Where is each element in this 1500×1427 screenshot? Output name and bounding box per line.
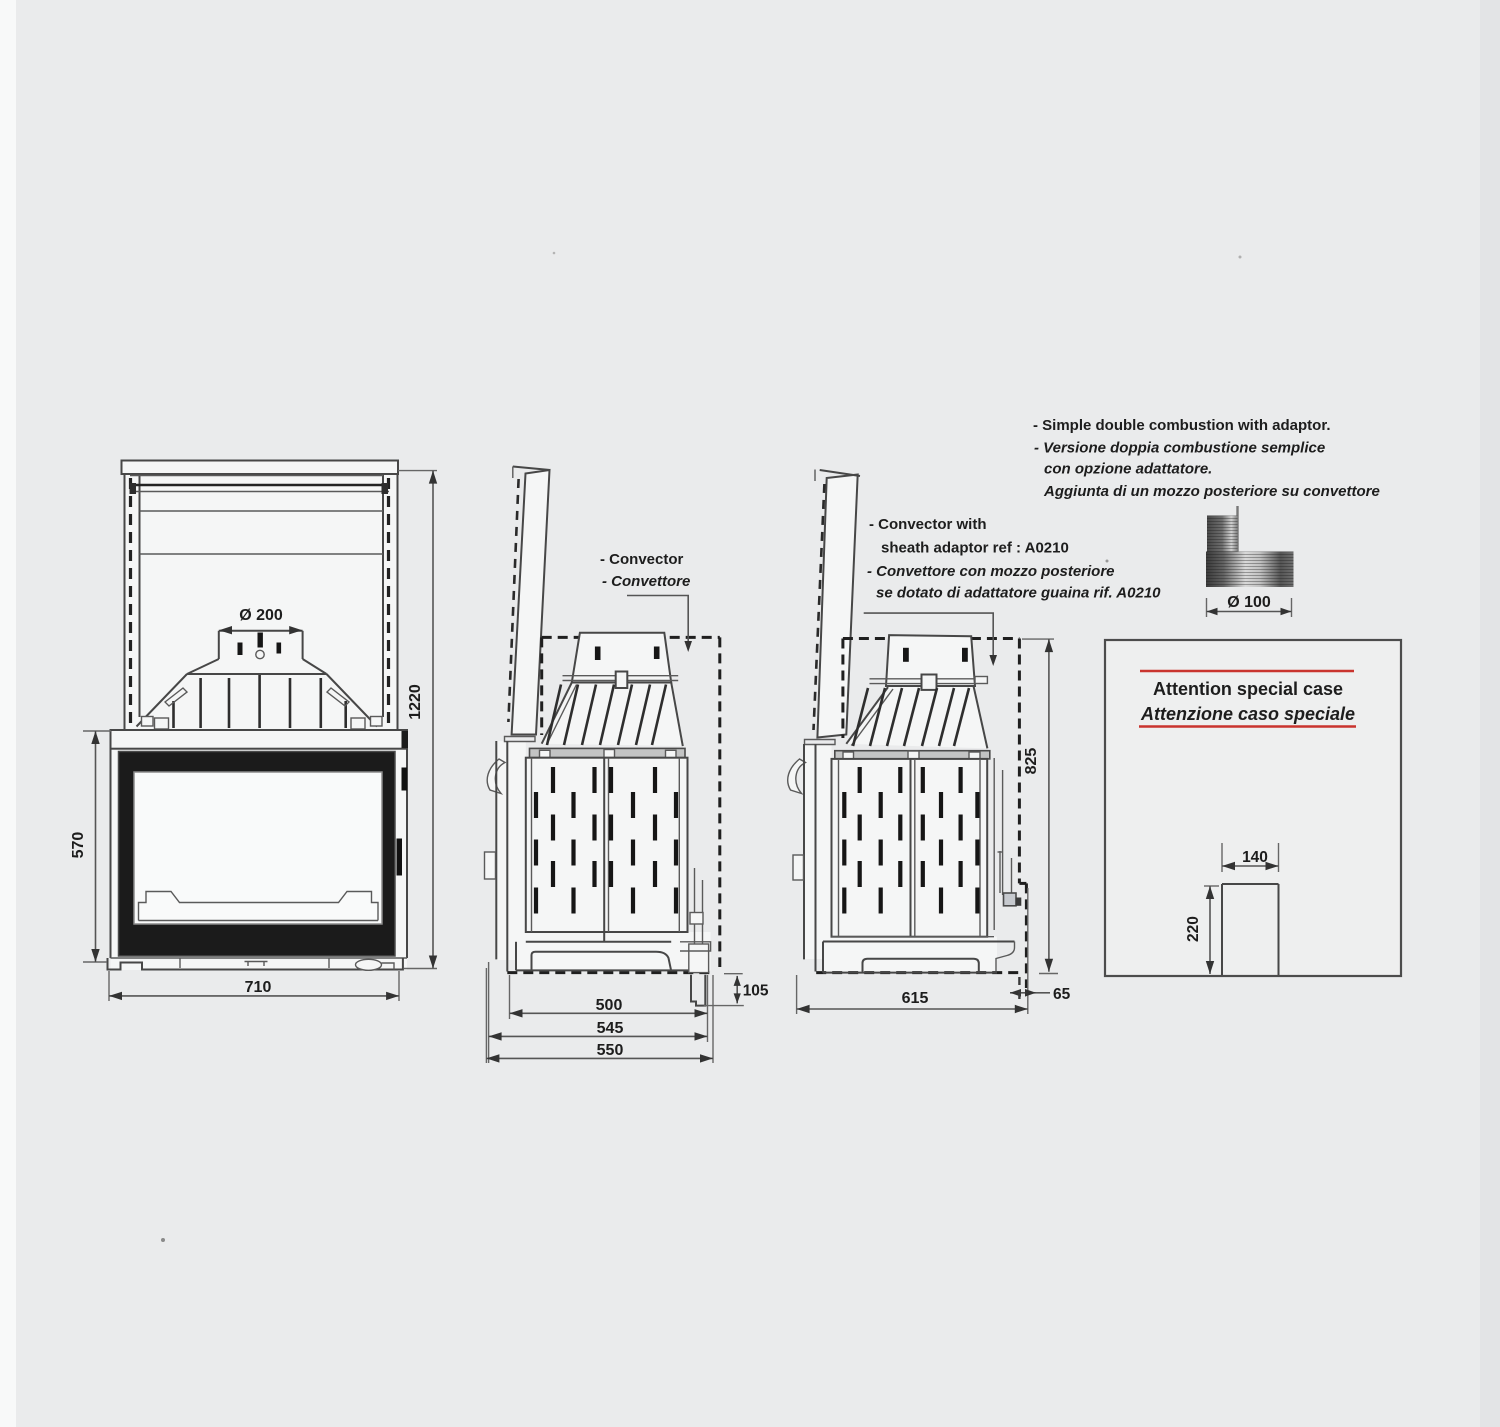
svg-text:1220: 1220 [407,684,424,720]
svg-text:- Convector with: - Convector with [869,516,987,533]
svg-text:- Simple double combustion wit: - Simple double combustion with adaptor. [1033,417,1331,434]
svg-text:220: 220 [1185,916,1202,942]
svg-text:615: 615 [902,990,929,1007]
svg-text:- Convettore con mozzo poster: - Convettore con mozzo posteriore [867,563,1115,580]
svg-text:con opzione adattatore.: con opzione adattatore. [1044,461,1212,478]
svg-text:- Convettore: - Convettore [602,573,690,590]
svg-text:sheath adaptor ref : A0210: sheath adaptor ref : A0210 [881,540,1069,557]
svg-text:570: 570 [70,832,87,859]
svg-text:550: 550 [597,1042,624,1059]
svg-text:Aggiunta di un mozzo posterior: Aggiunta di un mozzo posteriore su conve… [1043,483,1380,500]
svg-text:se dotato di adattatore guaina: se dotato di adattatore guaina rif. A021… [876,585,1161,602]
svg-text:Ø 200: Ø 200 [239,607,283,624]
svg-text:Ø 100: Ø 100 [1227,594,1271,611]
svg-text:825: 825 [1023,748,1040,775]
svg-text:Attention special case: Attention special case [1153,679,1343,699]
svg-text:500: 500 [596,997,623,1014]
svg-text:105: 105 [743,983,769,1000]
svg-text:- Versione doppia combustione: - Versione doppia combustione semplice [1034,440,1325,457]
svg-text:545: 545 [597,1020,624,1037]
svg-text:Attenzione caso speciale: Attenzione caso speciale [1140,704,1355,724]
svg-text:140: 140 [1242,849,1268,866]
svg-text:65: 65 [1053,986,1071,1003]
svg-text:- Convector: - Convector [600,551,684,568]
svg-text:710: 710 [245,979,272,996]
